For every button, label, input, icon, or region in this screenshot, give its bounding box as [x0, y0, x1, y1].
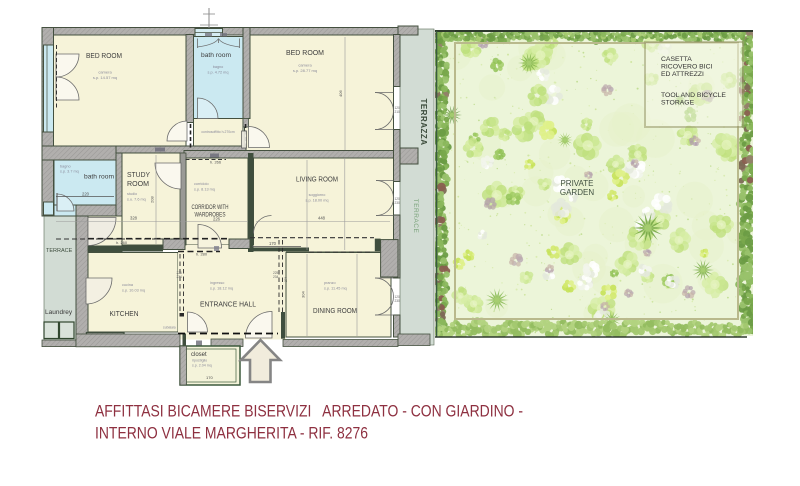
- svg-text:220: 220: [82, 192, 90, 197]
- svg-text:170: 170: [269, 241, 277, 246]
- svg-text:AFFITTASI BICAMERE BISERVIZI: AFFITTASI BICAMERE BISERVIZI ARREDATO - …: [95, 403, 523, 421]
- svg-text:TOOL AND BICYCLE: TOOL AND BICYCLE: [661, 92, 726, 99]
- svg-text:studio: studio: [127, 192, 137, 196]
- svg-text:soggiorno: soggiorno: [309, 193, 326, 197]
- svg-text:s.p. 8.13 mq: s.p. 8.13 mq: [194, 188, 215, 192]
- svg-text:ripostiglio: ripostiglio: [192, 359, 207, 363]
- svg-text:ingresso: ingresso: [210, 281, 224, 285]
- svg-text:406: 406: [338, 90, 343, 97]
- svg-text:h. 280: h. 280: [196, 252, 208, 257]
- svg-text:208: 208: [150, 196, 155, 203]
- svg-text:s.p. 28.77 mq: s.p. 28.77 mq: [293, 68, 317, 73]
- svg-text:304: 304: [301, 291, 306, 298]
- svg-text:TERRAZZA: TERRAZZA: [419, 98, 428, 145]
- svg-text:274: 274: [284, 276, 288, 282]
- svg-text:s.p. 4.72 mq: s.p. 4.72 mq: [208, 71, 229, 75]
- svg-text:328: 328: [130, 216, 138, 221]
- svg-text:CORRIDOR WITH: CORRIDOR WITH: [192, 205, 229, 211]
- svg-text:CASETTA: CASETTA: [661, 56, 692, 63]
- svg-text:448: 448: [318, 216, 326, 221]
- svg-text:STUDY: STUDY: [127, 172, 150, 179]
- svg-text:TERRACE: TERRACE: [412, 199, 419, 234]
- svg-text:ROOM: ROOM: [127, 181, 149, 188]
- svg-text:s.p. 10.03 mq: s.p. 10.03 mq: [122, 289, 145, 293]
- svg-text:s.p. 18.00 mq: s.p. 18.00 mq: [305, 199, 328, 203]
- svg-text:GARDEN: GARDEN: [560, 188, 594, 197]
- svg-text:closet: closet: [191, 352, 207, 358]
- svg-text:234: 234: [177, 275, 183, 279]
- svg-text:bagno: bagno: [213, 65, 224, 69]
- svg-text:DINING ROOM: DINING ROOM: [313, 306, 357, 315]
- svg-text:BED ROOM: BED ROOM: [86, 51, 122, 60]
- svg-text:s.p. 3.7 mq: s.p. 3.7 mq: [60, 170, 79, 174]
- svg-text:bath room: bath room: [84, 174, 114, 181]
- svg-text:bath room: bath room: [201, 52, 231, 59]
- svg-text:ED ATTREZZI: ED ATTREZZI: [661, 71, 704, 78]
- svg-text:PRIVATE: PRIVATE: [560, 179, 593, 188]
- svg-text:s.p. 14.57 mq: s.p. 14.57 mq: [93, 75, 117, 80]
- svg-text:bagno: bagno: [60, 165, 71, 169]
- svg-text:camera: camera: [298, 63, 312, 68]
- svg-text:s.p. 18.12 mq: s.p. 18.12 mq: [210, 287, 233, 291]
- svg-text:LIVING ROOM: LIVING ROOM: [296, 175, 338, 184]
- svg-text:INTERNO VIALE MARGHERITA - RIF: INTERNO VIALE MARGHERITA - RIF. 8276: [95, 425, 368, 443]
- svg-text:230: 230: [395, 201, 401, 205]
- svg-text:corridoio: corridoio: [194, 182, 209, 186]
- svg-text:RICOVERO BICI: RICOVERO BICI: [661, 64, 712, 71]
- svg-text:ENTRANCE HALL: ENTRANCE HALL: [200, 300, 256, 309]
- svg-text:s.p. 2.04 mq: s.p. 2.04 mq: [192, 364, 212, 368]
- svg-text:camera: camera: [98, 70, 112, 75]
- svg-text:s.p. 11.45 mq: s.p. 11.45 mq: [324, 287, 347, 291]
- svg-text:WARDROBES: WARDROBES: [195, 213, 226, 219]
- svg-text:subalaia: subalaia: [163, 326, 176, 330]
- svg-text:controsoffitto h.270cm: controsoffitto h.270cm: [201, 130, 234, 134]
- svg-text:pranzo: pranzo: [324, 281, 336, 285]
- svg-text:TERRACE: TERRACE: [46, 248, 73, 254]
- svg-text:cucina: cucina: [122, 283, 134, 287]
- svg-text:BED ROOM: BED ROOM: [286, 48, 324, 57]
- svg-text:Laundrey: Laundrey: [45, 309, 73, 316]
- svg-text:234: 234: [273, 275, 279, 279]
- svg-text:s.u. 7.6 mq: s.u. 7.6 mq: [127, 198, 146, 202]
- svg-text:h. 266: h. 266: [210, 160, 222, 165]
- svg-text:KITCHEN: KITCHEN: [110, 309, 139, 318]
- svg-text:230: 230: [395, 299, 401, 303]
- svg-text:STORAGE: STORAGE: [661, 100, 695, 107]
- svg-text:h. 260: h. 260: [116, 240, 128, 245]
- svg-text:210: 210: [395, 110, 401, 114]
- svg-text:170: 170: [206, 375, 213, 380]
